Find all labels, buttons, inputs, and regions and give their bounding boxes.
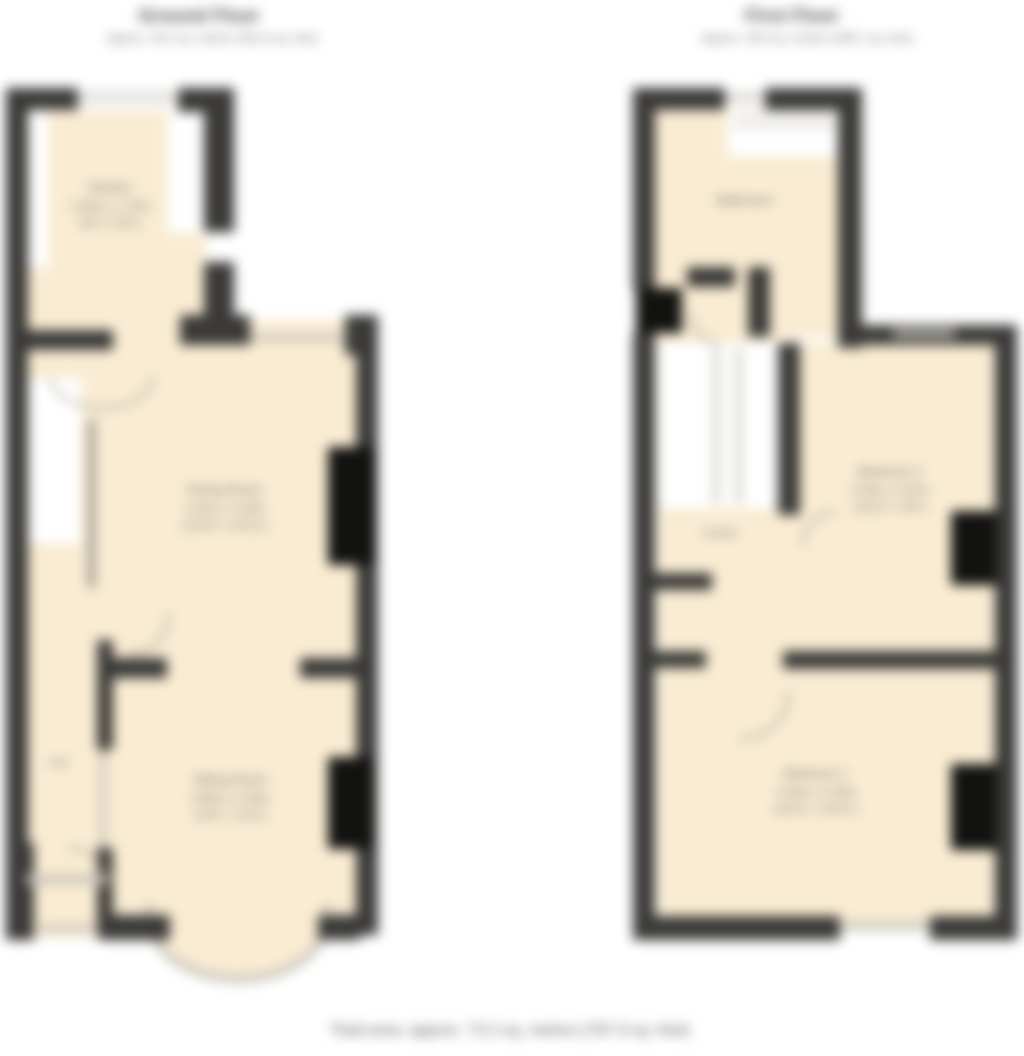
landing-name: Landing [701,527,737,542]
chimney-breast-bedroom2 [951,511,997,585]
kitchen-name: Kitchen [70,179,149,198]
side-return-gap [26,100,48,267]
chimney-breast-bedroom1 [951,764,997,850]
chimney-breast-left [636,288,682,333]
sitting-room-dims-imperial: (13'0" x 11'0") [190,807,269,824]
room-label-sitting-room: Sitting Room 3.96m x 3.35m (13'0" x 11'0… [190,771,269,825]
bedroom1-dims-imperial: (13'11" x 10'11") [773,801,858,818]
wall-bottom-right-segment [930,916,1017,940]
total-area-text: Total area: approx. 73.2 sq. metres (787… [330,1022,689,1040]
wall-bathroom-stub [687,267,735,287]
stairs [660,343,778,508]
sitting-room-dims-metric: 3.96m x 3.35m [190,790,269,807]
bathroom-window-line [734,124,834,127]
first-floor-title: First Floor [745,6,839,28]
wall-left-outer [6,88,28,940]
sitting-room-name: Sitting Room [190,771,269,790]
wall-bottom-left-segment [633,916,840,940]
rear-window-line [80,92,176,95]
kitchen-dims-metric: 1.93m x 1.75m [70,198,149,215]
room-label-bedroom-1: Bedroom 1 4.24m x 3.33m (13'11" x 10'11"… [773,765,858,819]
wall-main-top [180,315,250,345]
bedroom1-dims-metric: 4.24m x 3.33m [773,784,858,801]
wall-landing-stub-lower [638,651,706,668]
room-label-hall: Hall [49,757,66,772]
hall-door-line [100,750,106,848]
wall-bottom-left-corner [6,843,34,940]
wall-left-upper [633,88,655,290]
room-label-kitchen: Kitchen 1.93m x 1.75m (6'4" x 5'9") [70,179,149,233]
wall-right-outer [995,325,1017,938]
first-floor-subtitle: Approx. 36.8 sq. metres (396.1 sq. feet) [701,31,912,45]
floorplan-image: Ground Floor Approx. 36.4 sq. metres (39… [0,0,1024,1056]
rear-window-line [80,99,176,102]
wall-hall-divider-upper [97,640,113,750]
ground-floor-subtitle: Approx. 36.4 sq. metres (391.8 sq. feet) [106,31,317,45]
bedroom2-dims-imperial: (10'11" x 9'5") [850,499,929,516]
bedroom2-window-line [893,330,955,337]
wall-room-divider-left [103,658,167,678]
wall-rear-right [204,88,234,232]
dining-room-dims-metric: 4.22m x 3.33m [182,500,268,517]
bathroom-window-line [734,112,834,115]
kitchen-side-gap [168,110,206,232]
chimney-breast-sitting [328,757,372,849]
wall-bottom-right-of-bay [318,915,360,940]
stair-banister-line [88,420,95,588]
wall-bedroom-divider [783,651,1017,669]
room-label-bedroom-2: Bedroom 2 3.33m x 2.87m (10'11" x 9'5") [850,463,929,517]
bedroom2-dims-metric: 3.33m x 2.87m [850,482,929,499]
hall-name: Hall [49,757,66,772]
wall-bottom-left-of-bay [100,915,170,940]
top-door-line [727,94,763,100]
chimney-breast-dining [328,447,374,565]
stair-tread-line [736,348,741,503]
dining-room-dims-imperial: (13'10" x 10'11") [182,517,268,534]
bedroom1-window-line [842,922,930,930]
wall-left-lower [633,333,655,938]
wall-landing-stub-upper [638,573,712,590]
bedroom1-name: Bedroom 1 [773,765,858,784]
dining-room-name: Dining Room [182,481,268,500]
room-label-landing: Landing [701,527,737,542]
main-top-window-line [250,334,347,341]
wall-bathroom-stub-vertical [748,267,770,337]
wall-rear-right-lower [204,262,234,317]
wall-top-left [6,88,78,110]
wall-below-kitchen [6,330,113,350]
room-label-dining-room: Dining Room 4.22m x 3.33m (13'10" x 10'1… [182,481,268,535]
front-door-line [40,925,98,932]
stair-tread-line [714,348,719,503]
room-label-bathroom: Bathroom [717,192,773,211]
bedroom2-name: Bedroom 2 [850,463,929,482]
bathroom-name: Bathroom [717,192,773,211]
ground-floor-title: Ground Floor [138,6,259,28]
wall-room-divider-right [300,658,363,678]
kitchen-dims-imperial: (6'4" x 5'9") [70,215,149,232]
wall-rear-right [838,88,862,348]
wall-landing-bedroom2-divider [778,343,800,515]
